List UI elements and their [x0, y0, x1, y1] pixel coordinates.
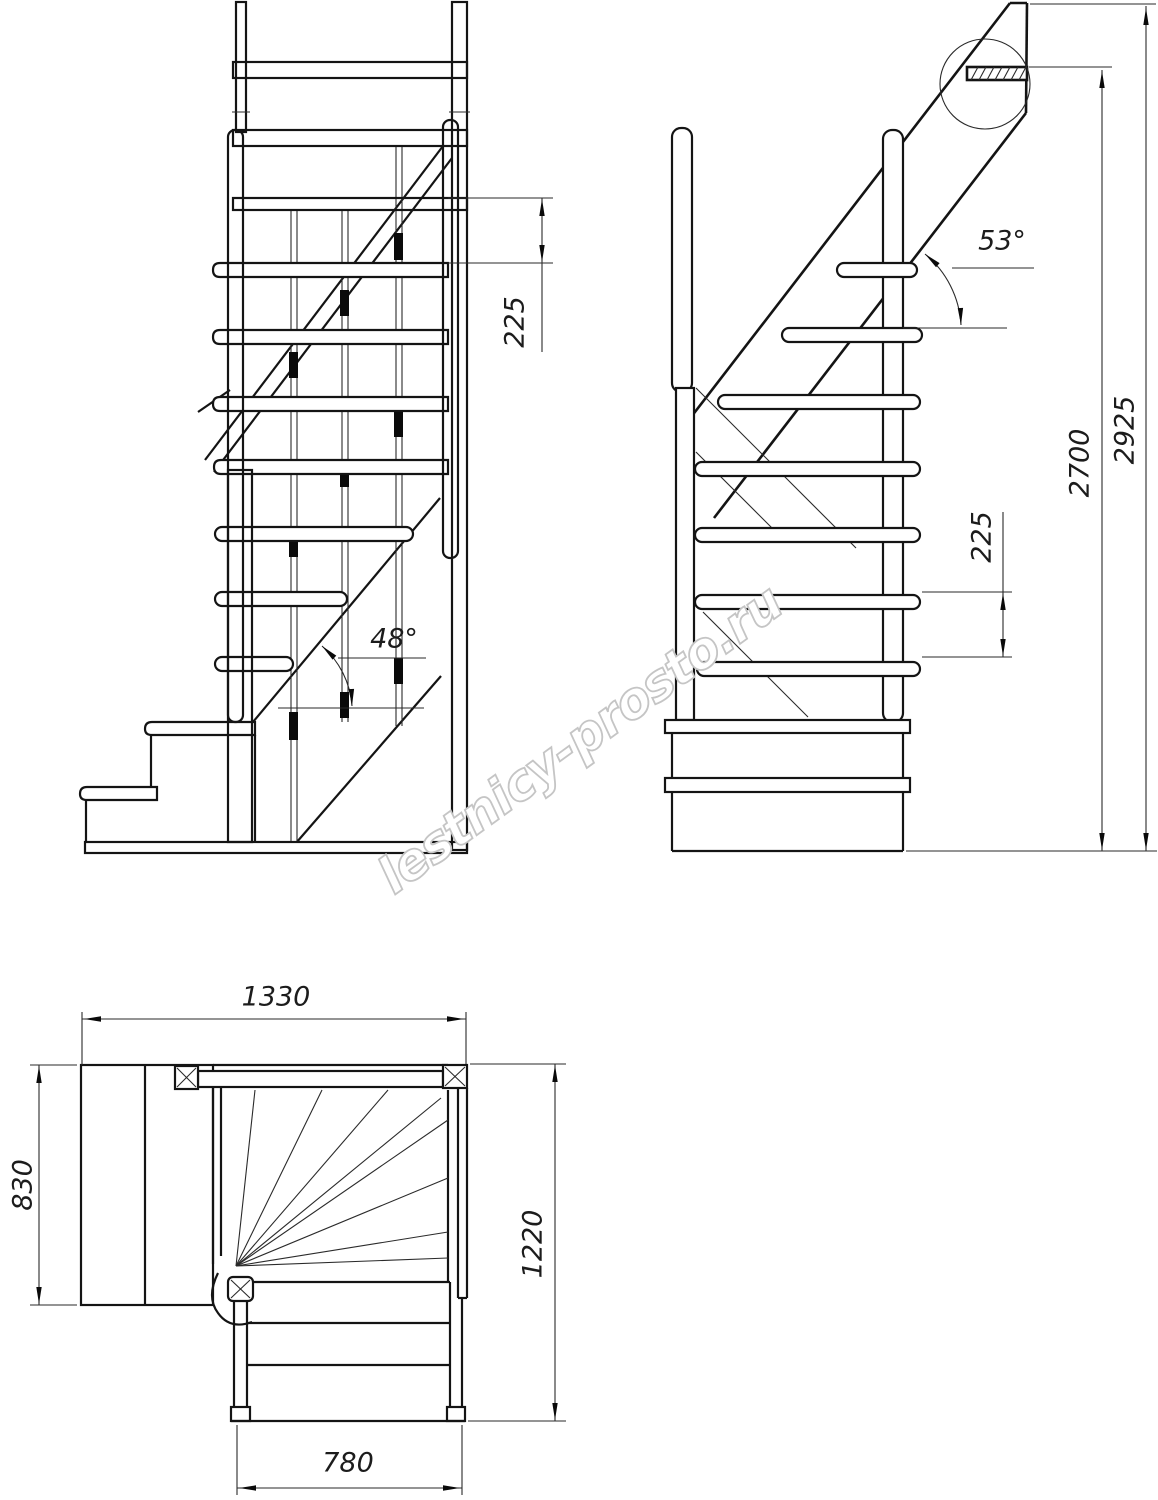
- plan-width-1330-label: 1330: [242, 982, 311, 1013]
- side-height-2700-label: 2700: [1065, 429, 1096, 498]
- plan-depth-830-label: 830: [8, 1159, 39, 1211]
- plan-rail-and-posts: [175, 1065, 467, 1301]
- side-floor-slab-section: [940, 39, 1030, 129]
- plan-dimension-780: 780: [237, 1425, 462, 1495]
- plan-landing: [81, 1065, 448, 1305]
- plan-winder-tread-edges: [236, 1090, 448, 1266]
- plan-lower-flight: [231, 1282, 465, 1421]
- watermark-text: lestnicy-prosto.ru: [367, 573, 793, 905]
- side-right-post: [883, 130, 903, 722]
- plan-left-stringer-foot: [231, 1407, 250, 1421]
- side-detail-callout-circle: [940, 39, 1030, 129]
- plan-right-stringer-foot: [447, 1407, 465, 1421]
- drawing-canvas: 225 48°: [0, 0, 1158, 1500]
- side-height-2925-label: 2925: [1110, 396, 1141, 465]
- front-posts-and-rails: [228, 2, 470, 850]
- front-balusters: [289, 146, 403, 842]
- side-dimension-2700: 2700: [1029, 67, 1112, 851]
- side-dimension-riser-225: 225: [922, 511, 1012, 657]
- front-riser-dimension-label: 225: [500, 296, 531, 348]
- plan-flight-width-780-label: 780: [322, 1448, 374, 1479]
- side-angle-53-annotation: 53°: [903, 226, 1034, 329]
- front-guardrail-top: [233, 62, 467, 78]
- side-angle-label: 53°: [978, 226, 1026, 257]
- front-guardrail-low: [233, 198, 467, 210]
- front-angle-label: 48°: [370, 624, 418, 655]
- front-dimension-riser-225: 225: [448, 198, 553, 352]
- plan-view: 1330 830 1220 780: [8, 982, 567, 1496]
- plan-dimension-830: 830: [8, 1065, 78, 1305]
- staircase-blueprint-svg: 225 48°: [0, 0, 1158, 1500]
- plan-top-rail: [198, 1071, 443, 1087]
- plan-dimension-1330: 1330: [82, 982, 466, 1066]
- side-elevation-view: 53° 225 2700 2925: [665, 3, 1157, 851]
- front-stringers: [198, 146, 452, 843]
- side-dimension-2925: 2925: [906, 4, 1157, 851]
- front-guardrail-mid: [233, 130, 467, 146]
- side-base-box: [665, 720, 910, 851]
- plan-dimension-1220: 1220: [468, 1064, 566, 1421]
- front-treads: [213, 263, 448, 671]
- front-elevation-view: 225 48°: [80, 2, 553, 853]
- plan-depth-1220-label: 1220: [518, 1210, 549, 1279]
- side-left-handrail-stanchion: [672, 128, 692, 392]
- side-riser-dimension-label: 225: [967, 511, 998, 563]
